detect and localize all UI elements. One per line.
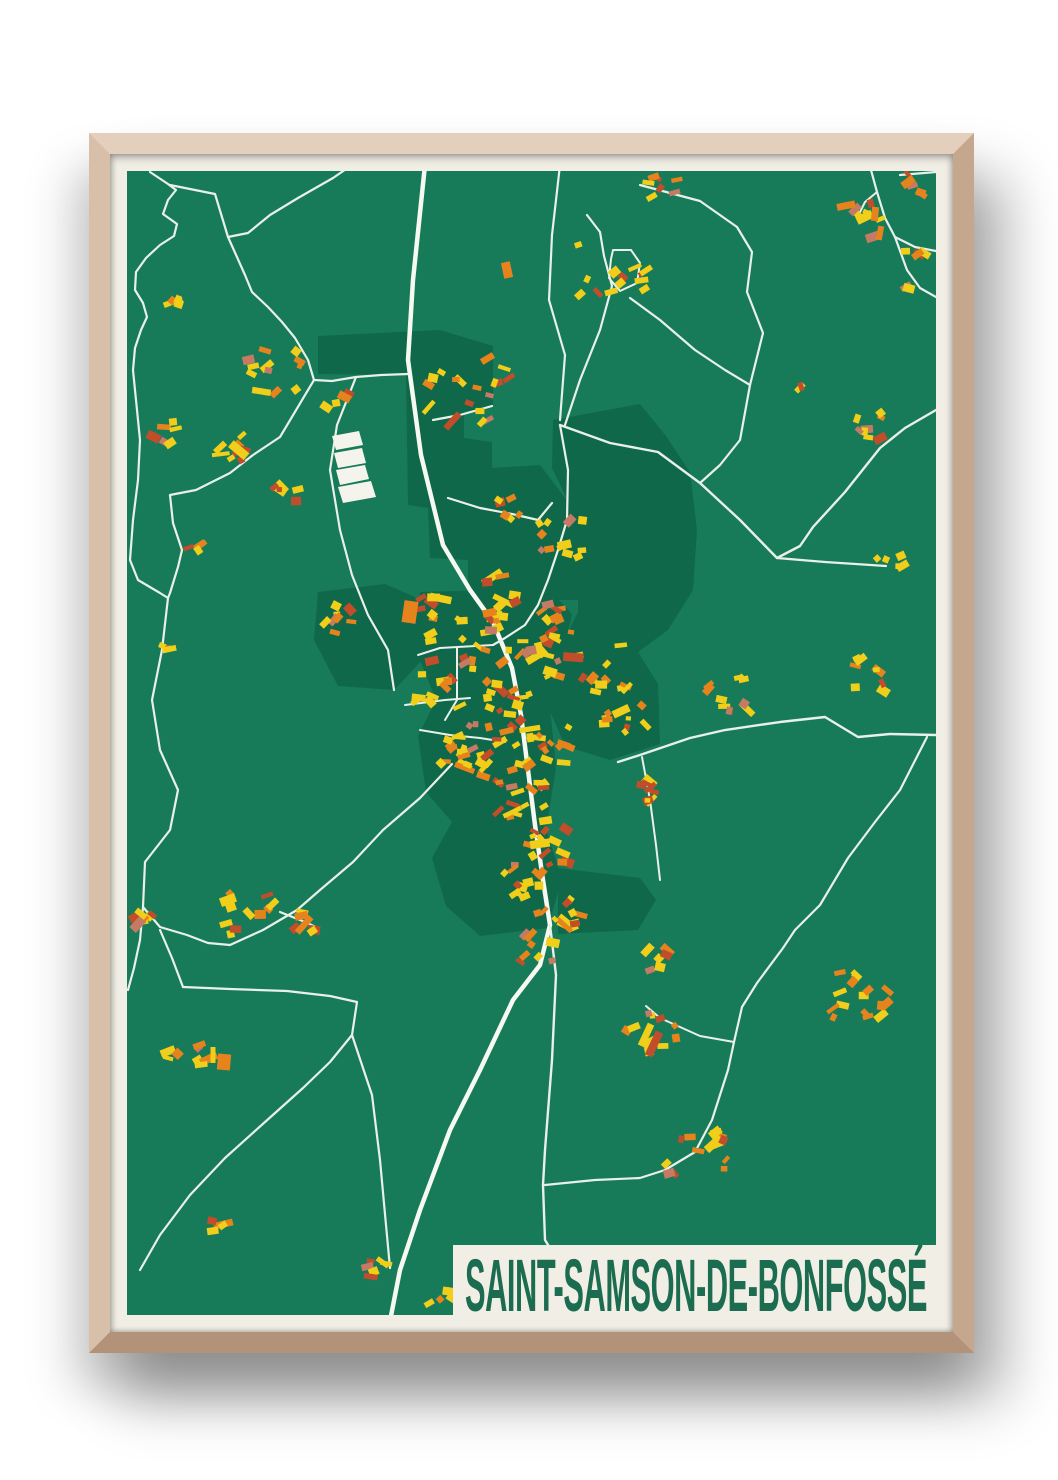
- map-art-layer: [127, 171, 936, 1315]
- city-name-banner: SAINT-SAMSON-DE-BONFOSSÉ: [453, 1244, 936, 1315]
- city-name-title: SAINT-SAMSON-DE-BONFOSSÉ: [465, 1244, 927, 1315]
- poster-frame: SAINT-SAMSON-DE-BONFOSSÉ: [89, 133, 974, 1353]
- page-background: SAINT-SAMSON-DE-BONFOSSÉ: [0, 0, 1058, 1480]
- map-poster: SAINT-SAMSON-DE-BONFOSSÉ: [127, 171, 936, 1315]
- map-canvas: SAINT-SAMSON-DE-BONFOSSÉ: [127, 171, 936, 1315]
- poster-mat: SAINT-SAMSON-DE-BONFOSSÉ: [110, 154, 953, 1332]
